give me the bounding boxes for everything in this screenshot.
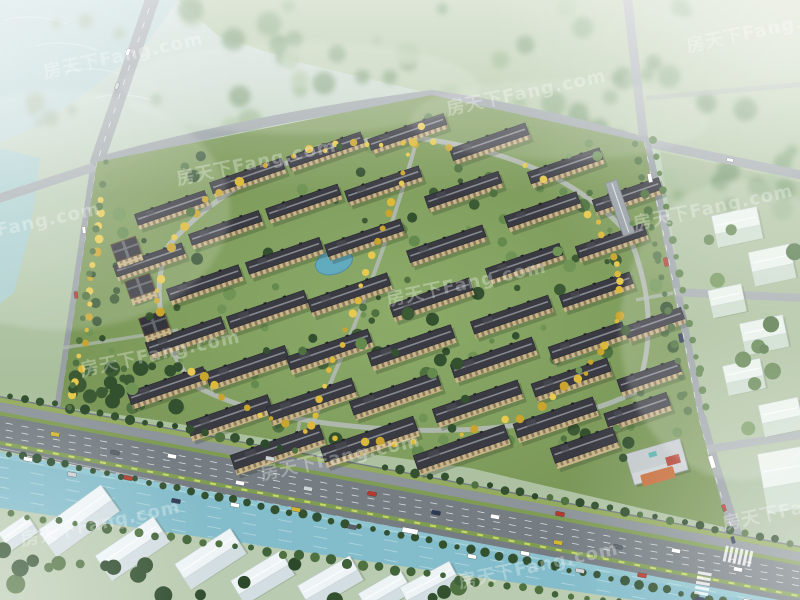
tree: [272, 283, 279, 290]
tree-yellow: [358, 283, 363, 288]
tree-yellow: [597, 348, 604, 355]
tree-yellow: [281, 419, 289, 427]
tree: [461, 395, 470, 404]
tree-yellow: [322, 384, 327, 389]
tree: [576, 367, 583, 374]
tree-yellow: [349, 309, 357, 317]
aerial-site-rendering: 房天下Fang.com房天下Fang.com房天下Fang.com房天下Fang…: [0, 0, 800, 600]
tree: [489, 338, 494, 343]
tree-yellow: [374, 238, 381, 245]
tree: [371, 309, 379, 317]
tree-yellow: [326, 367, 332, 373]
tree-yellow: [329, 357, 335, 363]
tree-yellow: [362, 269, 369, 276]
tree-yellow: [387, 198, 395, 206]
tree: [99, 335, 105, 341]
tree-yellow: [76, 354, 81, 359]
tree: [437, 585, 451, 599]
tree-yellow: [315, 395, 323, 403]
tree-yellow: [355, 297, 362, 304]
tree: [438, 434, 448, 444]
tree: [251, 380, 259, 388]
tree-yellow: [584, 371, 589, 376]
tree: [451, 358, 463, 370]
tree-yellow: [574, 375, 583, 384]
tree-yellow: [187, 368, 195, 376]
tree: [514, 285, 520, 291]
tree: [173, 362, 183, 372]
tree: [434, 354, 447, 367]
tree-yellow: [244, 404, 251, 411]
tree: [402, 307, 415, 320]
tree: [263, 347, 270, 354]
tree-yellow: [303, 429, 308, 434]
tree-yellow: [82, 340, 89, 347]
tree-yellow: [269, 416, 274, 421]
tree: [540, 325, 546, 331]
tree: [110, 384, 125, 399]
tree-yellow: [257, 413, 262, 418]
tree: [238, 576, 251, 589]
tree: [407, 213, 417, 223]
tree: [119, 374, 127, 382]
tree: [497, 237, 507, 247]
tree: [362, 218, 368, 224]
tree-yellow: [332, 435, 338, 441]
tree-yellow: [538, 402, 547, 411]
tree-yellow: [368, 251, 376, 259]
tree-yellow: [343, 327, 348, 332]
tree-yellow: [549, 394, 556, 401]
tree: [168, 399, 184, 415]
tree: [368, 317, 375, 324]
tree: [96, 387, 107, 398]
tree-yellow: [218, 394, 225, 401]
tree: [145, 312, 153, 320]
tree-yellow: [588, 359, 593, 364]
tree: [217, 304, 227, 314]
tree: [308, 334, 317, 343]
tree-yellow: [560, 381, 569, 390]
tree-yellow: [385, 209, 393, 217]
tree-yellow: [307, 421, 315, 429]
tree: [561, 435, 567, 441]
tree: [553, 246, 563, 256]
tree-yellow: [516, 415, 525, 424]
tree: [355, 338, 367, 350]
tree: [404, 277, 411, 284]
tree-yellow: [156, 308, 165, 317]
tree-yellow: [459, 432, 463, 436]
tree: [512, 332, 520, 340]
tree: [361, 312, 367, 318]
tree-yellow: [312, 412, 318, 418]
tree: [563, 260, 576, 273]
tree: [298, 347, 306, 355]
tree: [409, 235, 420, 246]
scene-canvas: 房天下Fang.com房天下Fang.com房天下Fang.com房天下Fang…: [0, 0, 800, 600]
tree-yellow: [380, 225, 386, 231]
tree: [554, 284, 566, 296]
tree-yellow: [210, 381, 218, 389]
tree-yellow: [615, 319, 619, 323]
tree: [448, 424, 457, 433]
tree: [427, 368, 438, 379]
tree-yellow: [470, 425, 478, 433]
tree: [126, 382, 139, 395]
tree-yellow: [340, 342, 346, 348]
tree: [391, 349, 399, 357]
tree: [469, 199, 480, 210]
tree: [419, 414, 428, 423]
tree-yellow: [200, 372, 209, 381]
tree-yellow: [501, 416, 509, 424]
